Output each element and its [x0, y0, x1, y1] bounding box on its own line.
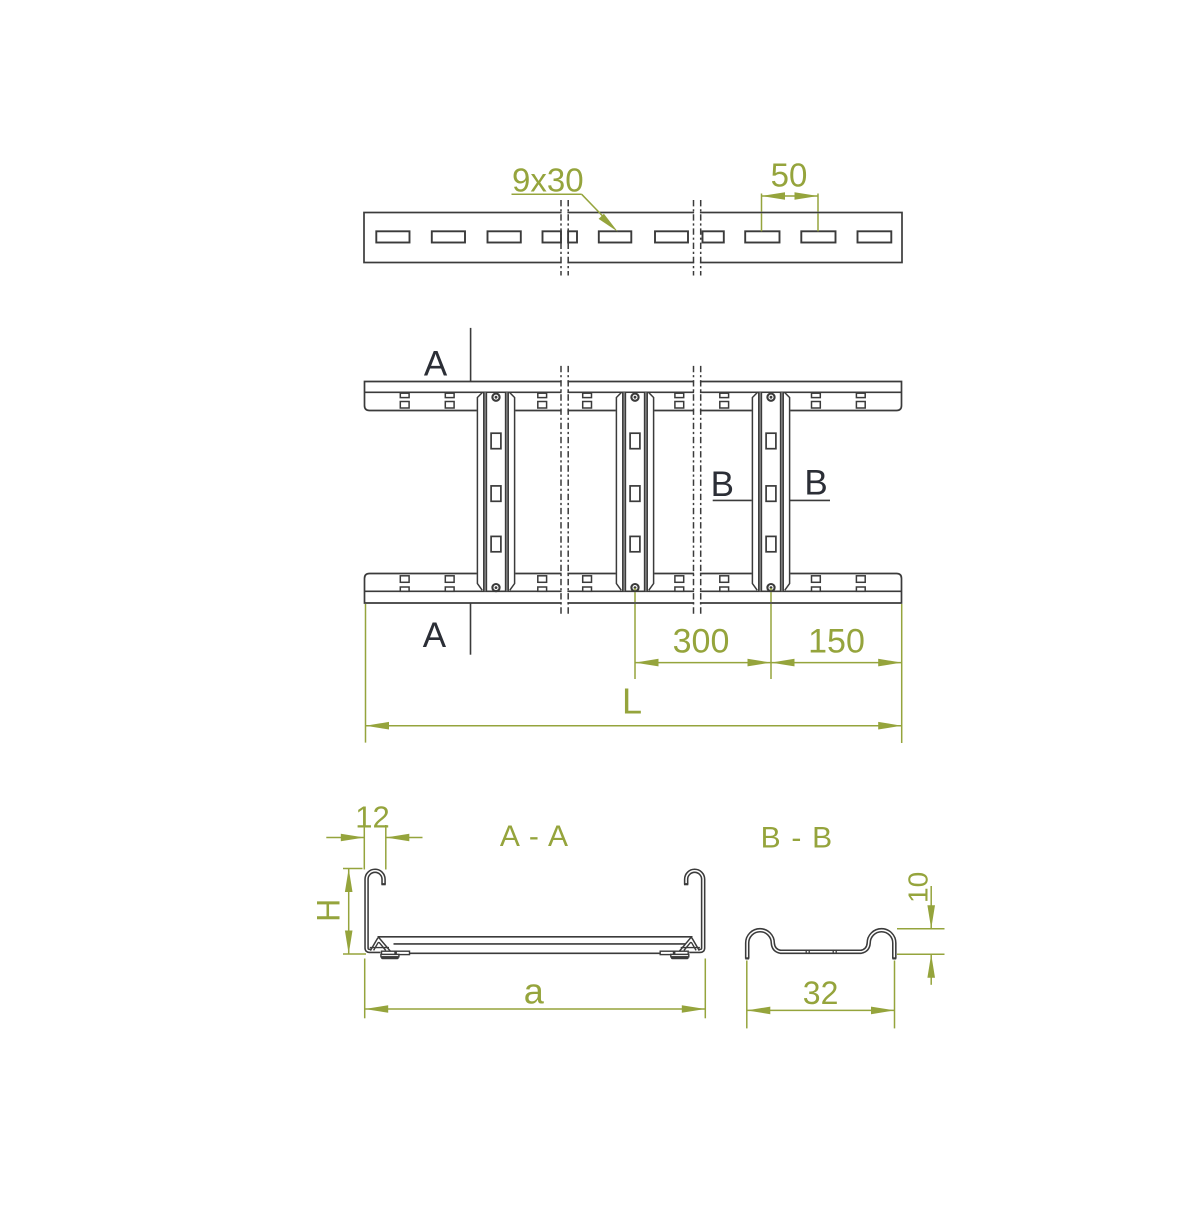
- svg-text:10: 10: [903, 872, 934, 903]
- svg-text:B: B: [711, 465, 734, 504]
- svg-text:300: 300: [673, 623, 730, 661]
- svg-text:50: 50: [771, 157, 808, 194]
- svg-text:L: L: [622, 681, 642, 722]
- svg-text:32: 32: [803, 975, 839, 1011]
- svg-text:B: B: [804, 464, 827, 503]
- svg-text:a: a: [524, 971, 545, 1012]
- svg-text:B - B: B - B: [761, 822, 834, 855]
- svg-text:H: H: [311, 899, 347, 922]
- svg-text:9x30: 9x30: [512, 162, 584, 199]
- svg-text:A: A: [424, 345, 448, 384]
- svg-text:150: 150: [808, 623, 865, 661]
- svg-text:A: A: [423, 616, 447, 655]
- svg-text:12: 12: [355, 800, 389, 835]
- svg-text:A - A: A - A: [500, 820, 569, 853]
